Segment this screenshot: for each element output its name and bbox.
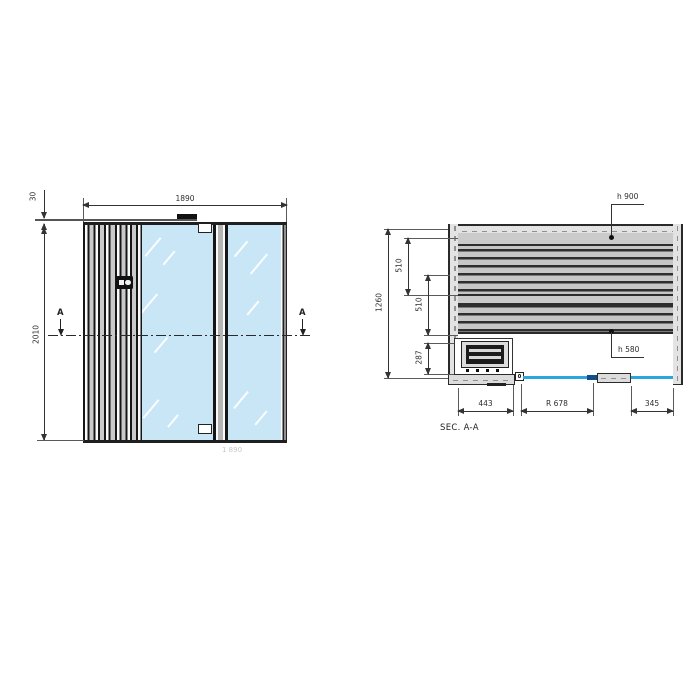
wall-hatch — [677, 226, 679, 382]
arrow-icon — [405, 289, 411, 296]
arrow-icon — [587, 408, 594, 414]
arrow-icon — [425, 329, 431, 336]
extension-line — [384, 229, 448, 230]
dim-value-door-radius: R 678 — [521, 399, 593, 408]
dim-line-roof-upper — [44, 190, 45, 218]
extension-line — [404, 295, 458, 296]
control-knob-icon — [125, 280, 131, 286]
dim-line-depth — [388, 229, 389, 378]
extension-line — [404, 238, 458, 239]
dim-value-roof: 30 — [29, 182, 38, 212]
section-arrow-icon — [58, 329, 64, 336]
wood-slat-wall-left — [83, 225, 142, 440]
extension-line — [37, 440, 84, 441]
roof-edge-line — [35, 219, 197, 221]
label-high-bench: h 900 — [617, 192, 638, 201]
heater-foot — [486, 369, 489, 373]
right-edge-post — [281, 225, 287, 440]
dim-line-front-right — [631, 411, 673, 412]
dim-value-front-left: 443 — [458, 399, 513, 408]
section-cut-line — [48, 335, 310, 336]
leader-line — [611, 204, 644, 205]
dim-value-height: 2010 — [32, 320, 41, 350]
upper-bench-top-board — [458, 233, 673, 246]
arrow-icon — [281, 202, 288, 208]
glass-reflection — [233, 391, 249, 409]
glass-reflection — [250, 253, 268, 274]
extension-line — [384, 378, 448, 379]
leader-line — [611, 332, 612, 357]
door-top-closer — [177, 214, 197, 219]
arrow-icon — [425, 274, 431, 281]
control-panel — [116, 276, 133, 289]
arrow-icon — [41, 212, 47, 219]
glass-reflection — [254, 410, 267, 425]
section-arrow-icon — [300, 329, 306, 336]
section-marker-right: A — [299, 308, 306, 318]
leader-line — [611, 357, 644, 358]
arrow-icon — [41, 227, 47, 234]
heater-grill-bar — [469, 349, 501, 352]
dim-line-heater-zone — [428, 343, 429, 374]
pivot-circle-icon — [518, 374, 522, 378]
dim-value-front-right: 345 — [631, 399, 673, 408]
wall-hatch — [601, 378, 627, 380]
leader-dot-icon — [609, 235, 614, 240]
glass-door-plan-line — [523, 376, 587, 379]
front-wall-pillar — [597, 373, 631, 383]
dim-value-width: 1890 — [165, 194, 205, 203]
arrow-icon — [507, 408, 514, 414]
heater-foot — [496, 369, 499, 373]
sauna-front-elevation — [83, 222, 287, 443]
dim-value-heater-zone: 287 — [415, 343, 424, 373]
lower-bench-top-board — [458, 294, 673, 305]
glass-reflection — [154, 337, 168, 354]
control-display — [119, 280, 124, 285]
dim-line-door-radius — [521, 411, 593, 412]
glass-reflection — [162, 250, 175, 265]
dim-value-depth: 1260 — [375, 288, 384, 318]
fixed-glass-plan-line — [631, 376, 673, 379]
arrow-icon — [630, 408, 637, 414]
heater-foot — [476, 369, 479, 373]
arrow-icon — [385, 372, 391, 379]
dim-value-upper-bench: 510 — [395, 251, 404, 281]
leader-line — [611, 204, 612, 237]
faint-bottom-dim: 1 890 — [222, 446, 242, 454]
arrow-icon — [520, 408, 527, 414]
section-caption: SEC. A-A — [440, 423, 479, 433]
glass-reflection — [167, 414, 179, 428]
dim-line-lower-bench — [428, 275, 429, 335]
door-handle — [587, 375, 597, 380]
glass-reflection — [142, 293, 158, 314]
plan-right-wall — [673, 224, 683, 385]
wall-hatch — [453, 380, 510, 382]
dim-line-front-left — [458, 411, 513, 412]
section-marker-left: A — [57, 308, 64, 318]
glass-door-panel — [142, 225, 213, 440]
heater-grill — [466, 345, 504, 364]
glass-reflection — [143, 399, 160, 419]
dim-line-upper-bench — [408, 238, 409, 295]
glass-reflection — [234, 241, 248, 258]
glass-reflection — [246, 300, 259, 315]
dim-line-height — [44, 228, 45, 440]
wall-hatch — [452, 231, 679, 233]
arrow-icon — [425, 368, 431, 375]
arrow-icon — [667, 408, 674, 414]
mid-post — [213, 225, 228, 440]
dim-line-width — [83, 205, 287, 206]
glass-fixed-panel — [228, 225, 281, 440]
bench-slats — [458, 233, 673, 334]
glass-reflection — [145, 237, 162, 257]
dim-value-lower-bench: 510 — [415, 290, 424, 320]
heater-foot — [466, 369, 469, 373]
plan-back-wall — [448, 224, 683, 233]
door-closer-plate — [487, 383, 506, 387]
door-hinge-bottom — [198, 424, 212, 434]
arrow-icon — [82, 202, 89, 208]
label-low-bench: h 580 — [618, 345, 639, 354]
technical-drawing-canvas: A A 1890 30 2010 1 890 — [0, 0, 700, 700]
arrow-icon — [405, 237, 411, 244]
heater-grill-bar — [469, 356, 501, 359]
arrow-icon — [457, 408, 464, 414]
arrow-icon — [385, 228, 391, 235]
arrow-icon — [425, 342, 431, 349]
door-hinge-top — [198, 223, 212, 233]
